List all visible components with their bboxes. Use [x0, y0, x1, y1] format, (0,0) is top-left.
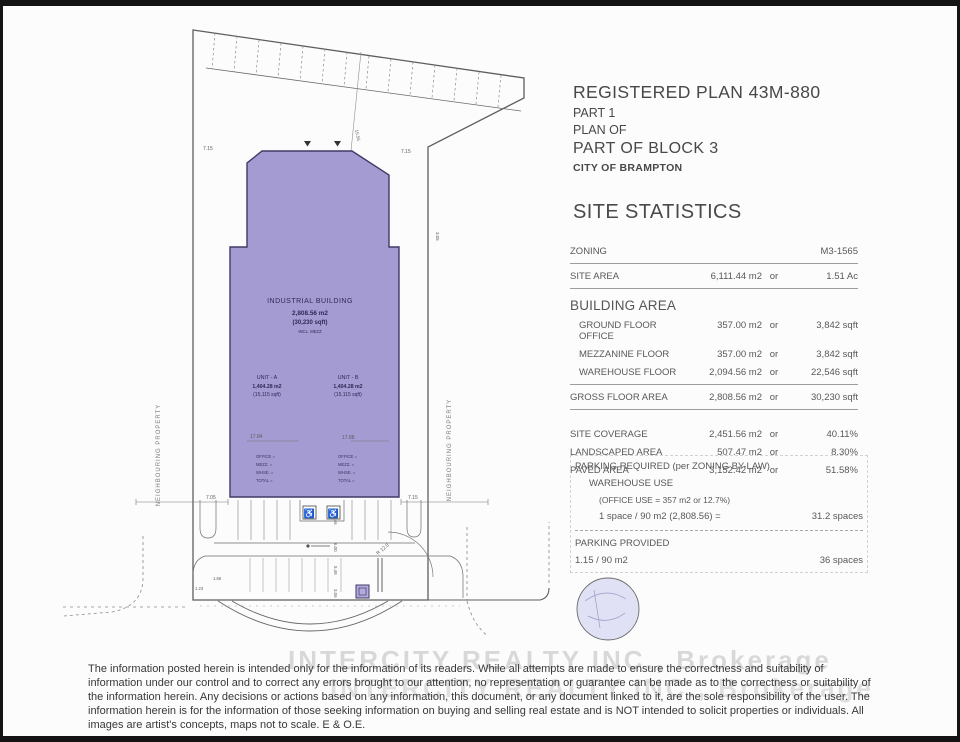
stats-row: BUILDING AREA [570, 298, 858, 313]
stats-v2: 40.11% [786, 429, 858, 440]
road-curb-left [64, 536, 143, 616]
surveyor-stamp [577, 578, 639, 640]
unit-detail-line: OFFICE = [256, 454, 276, 459]
top-parking-band-line [206, 68, 521, 111]
parking-provided-heading: PARKING PROVIDED [575, 538, 863, 549]
unit-b-sqft: (15,115 sqft) [334, 392, 362, 398]
unit-b-name: UNIT - B [338, 375, 359, 381]
road-curb-right [467, 527, 488, 636]
plan-of: PLAN OF [573, 123, 873, 137]
unit-detail-line: MEZZ. = [338, 462, 355, 467]
unit-detail-line: MEZZ. = [256, 462, 273, 467]
stats-row: SITE COVERAGE2,451.56 m2or40.11% [570, 429, 858, 440]
unit-b-m2: 1,404.28 m2 [333, 384, 362, 390]
stats-row: SITE AREA6,111.44 m2or1.51 Ac [570, 271, 858, 289]
stats-lbl: BUILDING AREA [570, 298, 682, 313]
stats-row: GROUND FLOOR OFFICE357.00 m2or3,842 sqft [570, 320, 858, 342]
dimension-label: 17.88 [342, 435, 355, 441]
parking-required-heading: PARKING REQUIRED (per ZONING BY-LAW) [575, 461, 863, 472]
dimension-label: 1.66 [213, 576, 222, 581]
stats-v2: 1.51 Ac [786, 271, 858, 282]
stats-row: ZONINGM3-1565 [570, 246, 858, 264]
unit-detail-line: TOTAL = [338, 478, 355, 483]
plan-city: CITY OF BRAMPTON [573, 162, 873, 174]
stats-lbl: GROSS FLOOR AREA [570, 392, 682, 403]
stats-or: or [762, 392, 786, 403]
parking-calc-formula: 1 space / 90 m2 (2,808.56) = [575, 511, 721, 522]
stats-v1: 2,808.56 m2 [682, 392, 762, 403]
stats-v2: 30,230 sqft [786, 392, 858, 403]
dimension-label: 17.84 [250, 434, 263, 440]
unit-a-sqft: (15,115 sqft) [253, 392, 281, 398]
stats-v1: 6,111.44 m2 [682, 271, 762, 282]
unit-a-name: UNIT - A [257, 375, 278, 381]
neighbouring-property-label-left: NEIGHBOURING PROPERTY [156, 404, 162, 507]
building-area-sqft: (30,230 sqft) [292, 320, 327, 326]
stats-v2: 22,546 sqft [786, 367, 858, 378]
parking-calc-value: 31.2 spaces [812, 511, 863, 522]
scanned-site-plan-page: 15.56 INDUSTRIAL BUILDING 2,808.56 m2 (3… [0, 0, 960, 742]
stats-lbl: MEZZANINE FLOOR [570, 349, 682, 360]
aisle-marker-dot [306, 544, 309, 547]
boundary-extension [428, 588, 549, 600]
dimension-label: 3.05 [435, 232, 440, 241]
stats-lbl: WAREHOUSE FLOOR [570, 367, 682, 378]
stats-v1: 2,094.56 m2 [682, 367, 762, 378]
parking-separator [575, 530, 863, 531]
stats-v1: 2,451.56 m2 [682, 429, 762, 440]
dimension-label: 1.23 [195, 586, 204, 591]
stats-row: MEZZANINE FLOOR357.00 m2or3,842 sqft [570, 349, 858, 360]
unit-detail-line: WHSE. = [338, 470, 356, 475]
building-note: INCL. MEZZ [298, 329, 322, 334]
parking-calc-row: 1 space / 90 m2 (2,808.56) = 31.2 spaces [575, 511, 863, 522]
stats-v2: M3-1565 [786, 246, 858, 257]
dimension-label: 5.48 [333, 566, 338, 575]
accessible-parking-icon: ♿ [304, 508, 315, 519]
stats-v1: 357.00 m2 [682, 320, 762, 331]
stats-row: WAREHOUSE FLOOR2,094.56 m2or22,546 sqft [570, 367, 858, 385]
stats-lbl: SITE AREA [570, 271, 682, 282]
unit-detail-line: OFFICE = [338, 454, 358, 459]
unit-detail-line: WHSE. = [256, 470, 274, 475]
driveway-apron-outer [218, 601, 402, 631]
stats-row: GROSS FLOOR AREA2,808.56 m2or30,230 sqft [570, 392, 858, 410]
transformer-pad [356, 585, 369, 598]
dimension-label: 3.06 [333, 589, 338, 598]
plan-block: PART OF BLOCK 3 [573, 140, 873, 158]
dimension-label: 7.15 [203, 146, 213, 152]
dimension-label: 15.56 [354, 129, 361, 142]
plan-title: REGISTERED PLAN 43M-880 [573, 82, 873, 103]
parking-provided-ratio: 1.15 / 90 m2 [575, 555, 628, 566]
parking-office-note: (OFFICE USE = 357 m2 or 12.7%) [575, 495, 863, 505]
driveway-radius-arc [388, 532, 433, 577]
stats-lbl: SITE COVERAGE [570, 429, 682, 440]
dimension-label: 7.05 [206, 495, 216, 501]
building-area-m2: 2,808.56 m2 [292, 310, 328, 317]
stats-or: or [762, 349, 786, 360]
parking-row-2 [193, 556, 463, 598]
stats-v1: 357.00 m2 [682, 349, 762, 360]
stats-lbl: ZONING [570, 246, 682, 257]
parking-block: PARKING REQUIRED (per ZONING BY-LAW) WAR… [570, 455, 868, 573]
dimension-label: R 12.0 [375, 542, 390, 556]
parking-provided-value: 36 spaces [820, 555, 863, 566]
stats-v2: 3,842 sqft [786, 320, 858, 331]
parking-provided-row: 1.15 / 90 m2 36 spaces [575, 555, 863, 566]
stats-or: or [762, 429, 786, 440]
stats-lbl: GROUND FLOOR OFFICE [570, 320, 682, 342]
unit-detail-line: TOTAL = [256, 478, 273, 483]
parking-use-label: WAREHOUSE USE [575, 478, 863, 489]
site-statistics-table: ZONINGM3-1565SITE AREA6,111.44 m2or1.51 … [570, 246, 858, 476]
dimension-label: 6.00 [333, 543, 338, 552]
dimension-label: 7.15 [401, 149, 411, 155]
plan-part: PART 1 [573, 106, 873, 120]
title-block: REGISTERED PLAN 43M-880 PART 1 PLAN OF P… [573, 82, 873, 174]
site-statistics-heading: SITE STATISTICS [573, 201, 742, 224]
stats-or: or [762, 367, 786, 378]
unit-a-m2: 1,404.28 m2 [252, 384, 281, 390]
stats-v2: 3,842 sqft [786, 349, 858, 360]
benchmark-triangle-icons [304, 141, 341, 147]
neighbouring-property-label-right: NEIGHBOURING PROPERTY [447, 399, 453, 502]
dimension-label: 7.15 [408, 495, 418, 501]
stats-or: or [762, 320, 786, 331]
building-name-label: INDUSTRIAL BUILDING [267, 298, 353, 305]
stats-or: or [762, 271, 786, 282]
disclaimer-text: The information posted herein is intende… [88, 663, 874, 733]
dimension-label: 5.46 [333, 516, 338, 525]
